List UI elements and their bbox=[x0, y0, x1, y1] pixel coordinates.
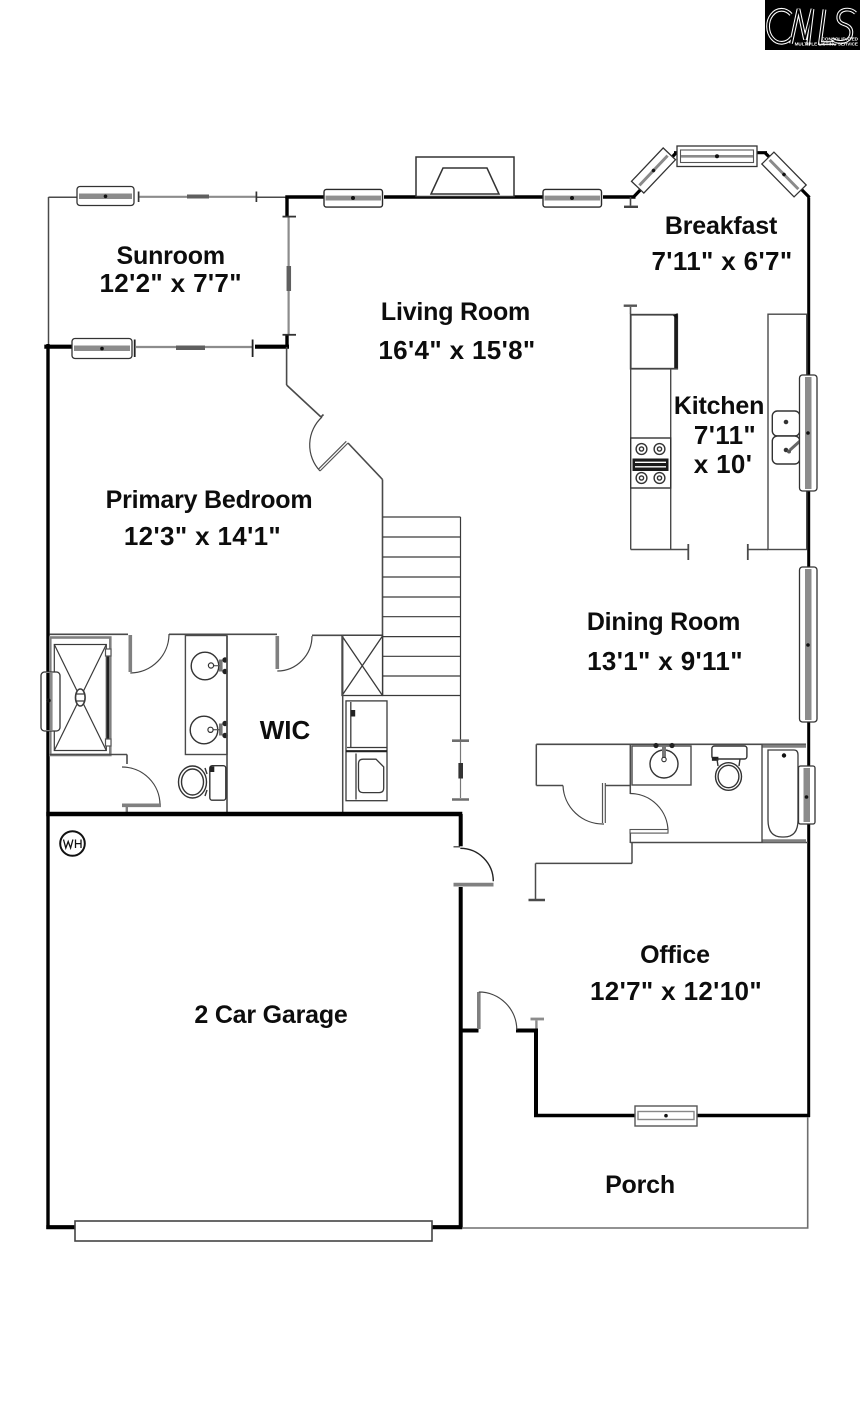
svg-text:Dining Room: Dining Room bbox=[587, 608, 740, 636]
svg-text:MULTIPLE LISTING SERVICE: MULTIPLE LISTING SERVICE bbox=[795, 42, 858, 47]
svg-text:7'11": 7'11" bbox=[694, 420, 756, 450]
svg-text:16'4" x 15'8": 16'4" x 15'8" bbox=[378, 335, 535, 365]
svg-text:x 10': x 10' bbox=[694, 449, 753, 479]
svg-text:Primary Bedroom: Primary Bedroom bbox=[106, 486, 313, 514]
svg-text:7'11" x 6'7": 7'11" x 6'7" bbox=[652, 246, 793, 276]
svg-text:Office: Office bbox=[640, 941, 710, 969]
svg-text:WIC: WIC bbox=[260, 715, 311, 745]
svg-text:13'1" x 9'11": 13'1" x 9'11" bbox=[587, 646, 743, 676]
svg-text:Sunroom: Sunroom bbox=[117, 242, 225, 270]
svg-text:12'2" x 7'7": 12'2" x 7'7" bbox=[99, 268, 241, 298]
svg-text:Kitchen: Kitchen bbox=[674, 392, 764, 420]
svg-text:Porch: Porch bbox=[605, 1171, 675, 1199]
svg-text:Breakfast: Breakfast bbox=[665, 212, 778, 240]
svg-text:2 Car Garage: 2 Car Garage bbox=[194, 1001, 348, 1029]
svg-text:Living Room: Living Room bbox=[381, 298, 530, 326]
svg-text:12'7" x 12'10": 12'7" x 12'10" bbox=[590, 976, 762, 1006]
svg-text:12'3" x 14'1": 12'3" x 14'1" bbox=[124, 521, 281, 551]
